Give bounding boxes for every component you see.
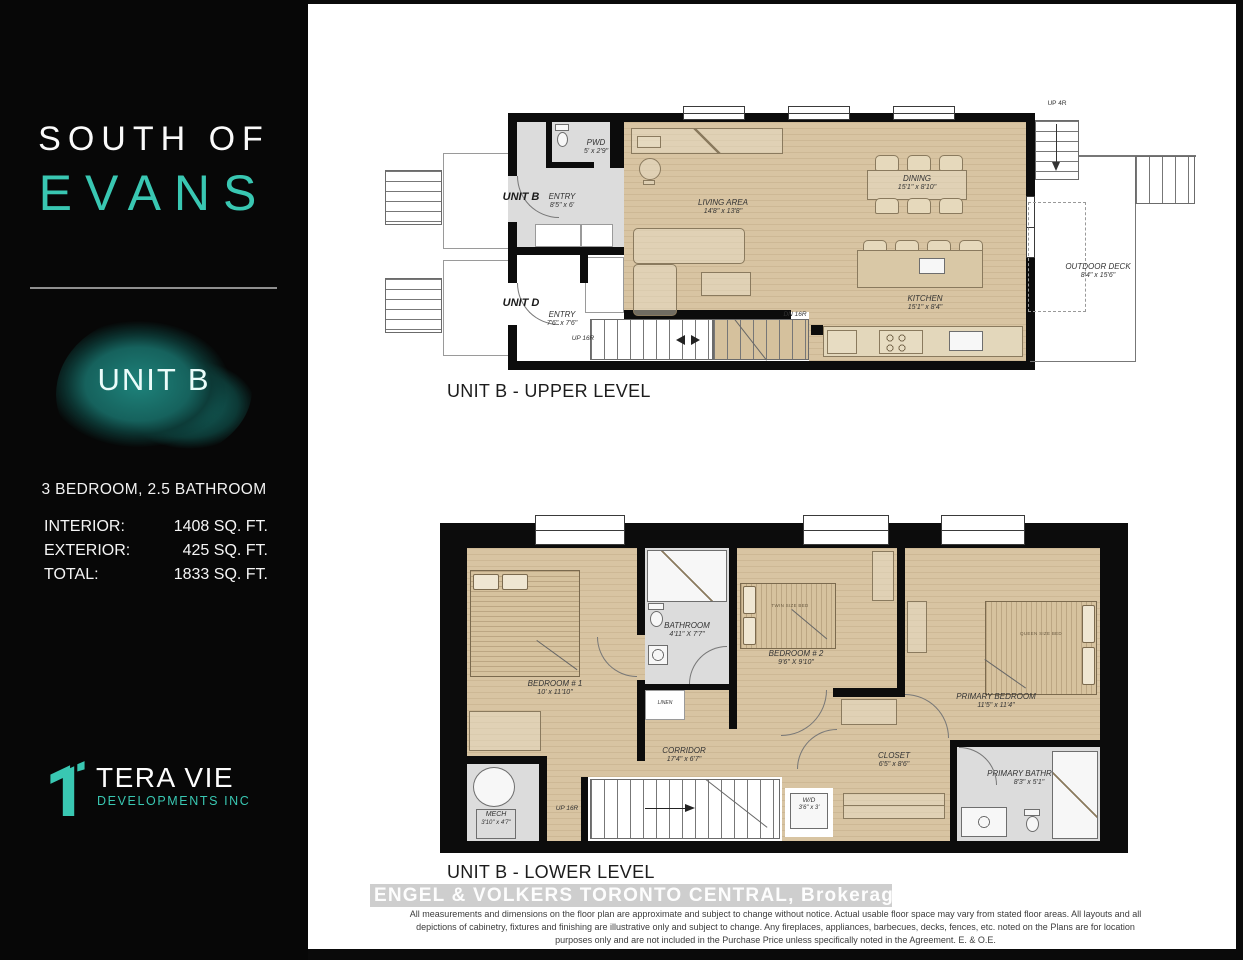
corridor-label: CORRIDOR 17'4" x 6'7": [625, 746, 743, 765]
up-4r-label: UP 4R: [1035, 100, 1079, 108]
lower-level-plan: BEDROOM # 1 10' x 11'10" BATHROOM 4'11" …: [440, 513, 1130, 853]
kitchen-sink: [949, 331, 983, 351]
toilet-icon: [1024, 809, 1040, 816]
frame-bottom: [308, 949, 1243, 960]
bedroom1-label: BEDROOM # 1 10' x 11'10": [500, 679, 610, 698]
dn-16r-label: DN 16R: [775, 311, 815, 319]
window: [535, 515, 625, 545]
upper-level-plan: PWD 5' x 2'9" UNIT B ENTRY 8'5" x 6' UNI…: [383, 98, 1195, 374]
dining-chair: [939, 198, 963, 214]
stat-label: INTERIOR:: [44, 518, 125, 536]
bed-size-tag: QUEEN SIZE BED: [998, 631, 1084, 636]
exterior-stairs: [385, 278, 442, 333]
decor: [637, 136, 661, 148]
closet-label: CLOSET 6'5" x 8'6": [838, 751, 950, 770]
stair-arrow-head: [685, 804, 695, 812]
upper-plan-title: UNIT B - UPPER LEVEL: [447, 381, 651, 402]
tera-vie-logo-icon: [46, 758, 90, 816]
sofa-chaise: [633, 264, 677, 316]
pwd-label: PWD 5' x 2'9": [573, 138, 619, 157]
window: [683, 106, 745, 120]
pillow: [743, 586, 756, 614]
entry-b-label: ENTRY 8'5" x 6': [531, 192, 593, 211]
window: [788, 106, 850, 120]
wall: [539, 756, 547, 841]
stat-value: 1833 SQ. FT.: [174, 566, 268, 584]
brand-line2: EVANS: [0, 164, 308, 222]
dining-chair: [939, 155, 963, 171]
wall: [950, 740, 957, 841]
pillow: [1082, 647, 1095, 685]
entry-d-label: ENTRY 7'6" x 7'6": [529, 310, 595, 329]
toilet-icon: [648, 603, 664, 610]
wall: [546, 122, 552, 166]
vanity-sink: [961, 807, 1007, 837]
up-16r-label: UP 16R: [563, 335, 603, 343]
frame-top: [308, 0, 1243, 4]
stat-row-interior: INTERIOR: 1408 SQ. FT.: [44, 518, 268, 540]
window: [941, 515, 1025, 545]
entry-closet: [581, 224, 613, 247]
unit-name: UNIT B: [0, 362, 308, 398]
developer-logo: TERA VIE DEVELOPMENTS INC: [46, 758, 276, 818]
desk: [872, 551, 894, 601]
linen-label: LINEN: [645, 700, 685, 706]
coffee-table: [701, 272, 751, 296]
wall: [833, 688, 897, 697]
pillow: [473, 574, 499, 590]
floor-plan-poster: SOUTH OF EVANS UNIT B 3 BEDROOM, 2.5 BAT…: [0, 0, 1243, 960]
deck-side-stairs: [1135, 156, 1195, 204]
divider-line: [30, 287, 277, 289]
bathroom-label: BATHROOM 4'11" X 7'7": [643, 621, 731, 640]
wall: [957, 740, 1100, 747]
toilet-icon: [1026, 816, 1039, 832]
primary-bedroom-label: PRIMARY BEDROOM 11'5" x 11'4": [918, 692, 1074, 711]
deck-railing: [1030, 361, 1136, 362]
unit-config: 3 BEDROOM, 2.5 BATHROOM: [0, 481, 308, 499]
fridge: [827, 330, 857, 354]
toilet-icon: [557, 132, 568, 147]
closet-door-line: [843, 805, 945, 806]
deck-railing: [1135, 204, 1136, 362]
sidebar: SOUTH OF EVANS UNIT B 3 BEDROOM, 2.5 BAT…: [0, 0, 308, 960]
entry-closet: [535, 224, 581, 247]
stair-arrow-line: [645, 808, 685, 809]
living-area-label: LIVING AREA 14'8" x 13'8": [683, 198, 763, 217]
up-16r-label: UP 16R: [548, 805, 586, 813]
pillow: [502, 574, 528, 590]
stair-arrow-head: [1052, 162, 1060, 171]
stair-direction-arrow: [676, 335, 685, 345]
bed: [985, 601, 1097, 695]
desk-chair: [643, 180, 655, 185]
dresser: [841, 699, 897, 725]
stove: [879, 330, 923, 354]
mech-label: MECH 3'10" x 4'7": [470, 811, 522, 827]
wall: [467, 756, 539, 764]
window: [893, 106, 955, 120]
water-tank: [473, 767, 515, 807]
shower: [647, 550, 727, 602]
unit-d-label: UNIT D: [491, 297, 551, 311]
developer-subtitle: DEVELOPMENTS INC: [97, 794, 250, 808]
stat-label: EXTERIOR:: [44, 542, 130, 560]
dining-chair: [875, 198, 899, 214]
pillow: [1082, 605, 1095, 643]
desk-chair: [639, 158, 661, 180]
shower: [1052, 751, 1098, 839]
wall: [729, 684, 737, 729]
wall: [546, 162, 594, 168]
bedroom2-label: BEDROOM # 2 9'6" X 9'10": [740, 649, 852, 668]
stat-row-exterior: EXTERIOR: 425 SQ. FT.: [44, 542, 268, 564]
frame-right: [1236, 0, 1243, 960]
outdoor-deck-label: OUTDOOR DECK 8'4" x 15'6": [1023, 262, 1173, 281]
brokerage-watermark: ENGEL & VOLKERS TORONTO CENTRAL, Brokera…: [370, 884, 892, 907]
bed-size-tag: TWIN SIZE BED: [750, 603, 830, 608]
deck-stairs-up: [1035, 120, 1079, 180]
kitchen-label: KITCHEN 15'1" x 8'4": [875, 294, 975, 313]
brand-line1: SOUTH OF: [0, 120, 308, 159]
dining-label: DINING 15'1" x 8'10": [867, 174, 967, 193]
sink: [648, 645, 668, 665]
stair-direction-arrow: [691, 335, 700, 345]
wall: [580, 255, 588, 283]
wall: [897, 548, 905, 697]
stat-row-total: TOTAL: 1833 SQ. FT.: [44, 566, 268, 588]
disclaimer-text: All measurements and dimensions on the f…: [403, 908, 1148, 947]
lower-plan-title: UNIT B - LOWER LEVEL: [447, 862, 655, 883]
wall: [811, 325, 823, 335]
window: [803, 515, 889, 545]
sofa: [633, 228, 745, 264]
plan-sheet: PWD 5' x 2'9" UNIT B ENTRY 8'5" x 6' UNI…: [308, 0, 1243, 960]
desk: [907, 601, 927, 653]
dresser: [469, 711, 541, 751]
stat-value: 425 SQ. FT.: [183, 542, 268, 560]
developer-name: TERA VIE: [96, 762, 234, 794]
island-sink: [919, 258, 945, 274]
stair-arrow-line: [1056, 124, 1057, 164]
deck-outline: [1028, 202, 1086, 312]
dining-chair: [907, 198, 931, 214]
unit-d-closet: [585, 257, 624, 313]
dining-chair: [875, 155, 899, 171]
closet-sliding-doors: [843, 793, 945, 819]
dining-chair: [907, 155, 931, 171]
stat-value: 1408 SQ. FT.: [174, 518, 268, 536]
wall: [508, 247, 624, 255]
wd-label: W/D 3'6" x 3': [785, 797, 833, 813]
stat-label: TOTAL:: [44, 566, 99, 584]
pillow: [743, 617, 756, 645]
toilet-icon: [555, 124, 569, 131]
exterior-stairs: [385, 170, 442, 225]
